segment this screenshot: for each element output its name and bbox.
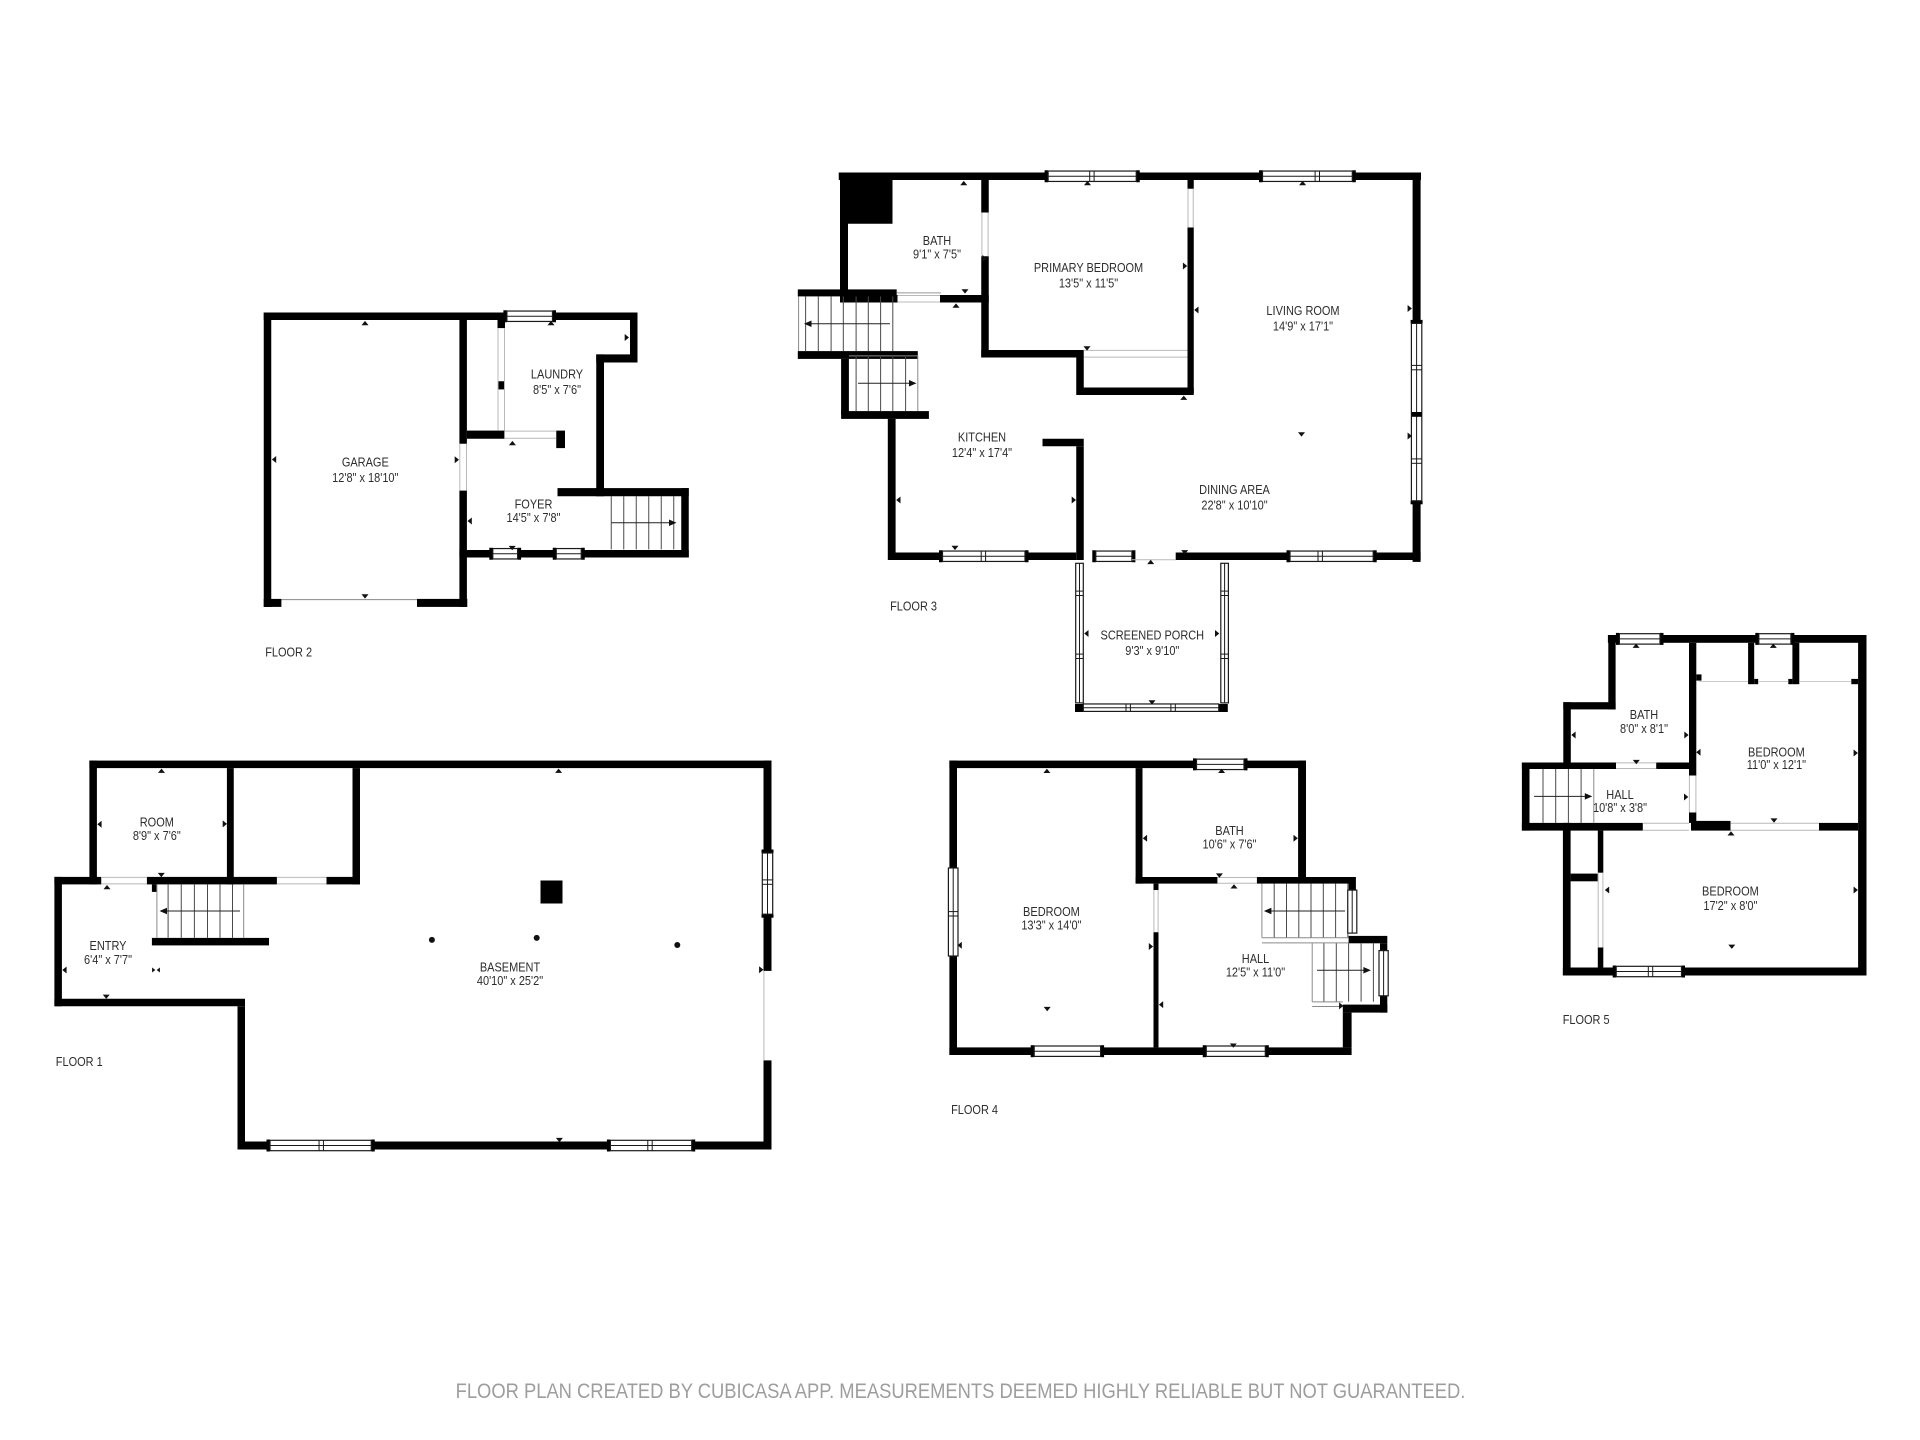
svg-text:9'1" x 7'5": 9'1" x 7'5" <box>913 247 961 262</box>
svg-text:DINING AREA: DINING AREA <box>1199 482 1270 497</box>
svg-text:13'3" x 14'0": 13'3" x 14'0" <box>1021 918 1081 933</box>
svg-text:BEDROOM: BEDROOM <box>1702 884 1759 899</box>
svg-text:40'10" x 25'2": 40'10" x 25'2" <box>477 973 543 988</box>
svg-text:LAUNDRY: LAUNDRY <box>531 367 583 382</box>
svg-text:8'0" x 8'1": 8'0" x 8'1" <box>1620 721 1668 736</box>
svg-text:FLOOR PLAN CREATED BY CUBICASA: FLOOR PLAN CREATED BY CUBICASA APP. MEAS… <box>456 1380 1466 1404</box>
svg-text:12'4" x 17'4": 12'4" x 17'4" <box>952 445 1012 460</box>
svg-text:8'9" x 7'6": 8'9" x 7'6" <box>133 828 181 843</box>
svg-text:FLOOR 4: FLOOR 4 <box>951 1102 998 1117</box>
svg-text:9'3" x 9'10": 9'3" x 9'10" <box>1125 643 1179 658</box>
svg-text:10'6" x 7'6": 10'6" x 7'6" <box>1202 837 1256 852</box>
svg-text:6'4" x 7'7": 6'4" x 7'7" <box>84 952 132 967</box>
svg-text:13'5" x 11'5": 13'5" x 11'5" <box>1059 276 1118 291</box>
svg-text:17'2" x 8'0": 17'2" x 8'0" <box>1703 898 1757 913</box>
svg-text:FLOOR 3: FLOOR 3 <box>890 599 937 614</box>
svg-text:BATH: BATH <box>1630 707 1658 722</box>
svg-text:KITCHEN: KITCHEN <box>958 429 1006 444</box>
svg-text:FLOOR 1: FLOOR 1 <box>56 1054 103 1069</box>
svg-text:12'8" x 18'10": 12'8" x 18'10" <box>332 470 398 485</box>
svg-text:SCREENED PORCH: SCREENED PORCH <box>1101 628 1205 643</box>
svg-text:12'5" x 11'0": 12'5" x 11'0" <box>1226 965 1285 980</box>
svg-text:PRIMARY BEDROOM: PRIMARY BEDROOM <box>1034 260 1143 275</box>
svg-text:FLOOR 2: FLOOR 2 <box>265 645 312 660</box>
svg-text:22'8" x 10'10": 22'8" x 10'10" <box>1201 498 1267 513</box>
svg-text:8'5" x 7'6": 8'5" x 7'6" <box>533 382 581 397</box>
svg-text:LIVING ROOM: LIVING ROOM <box>1266 303 1339 318</box>
svg-text:11'0" x 12'1": 11'0" x 12'1" <box>1747 757 1806 772</box>
svg-text:14'9" x 17'1": 14'9" x 17'1" <box>1273 319 1333 334</box>
svg-text:10'8" x 3'8": 10'8" x 3'8" <box>1593 800 1647 815</box>
svg-text:14'5" x 7'8": 14'5" x 7'8" <box>506 510 560 525</box>
svg-text:FLOOR 5: FLOOR 5 <box>1563 1012 1610 1027</box>
svg-text:GARAGE: GARAGE <box>342 455 389 470</box>
